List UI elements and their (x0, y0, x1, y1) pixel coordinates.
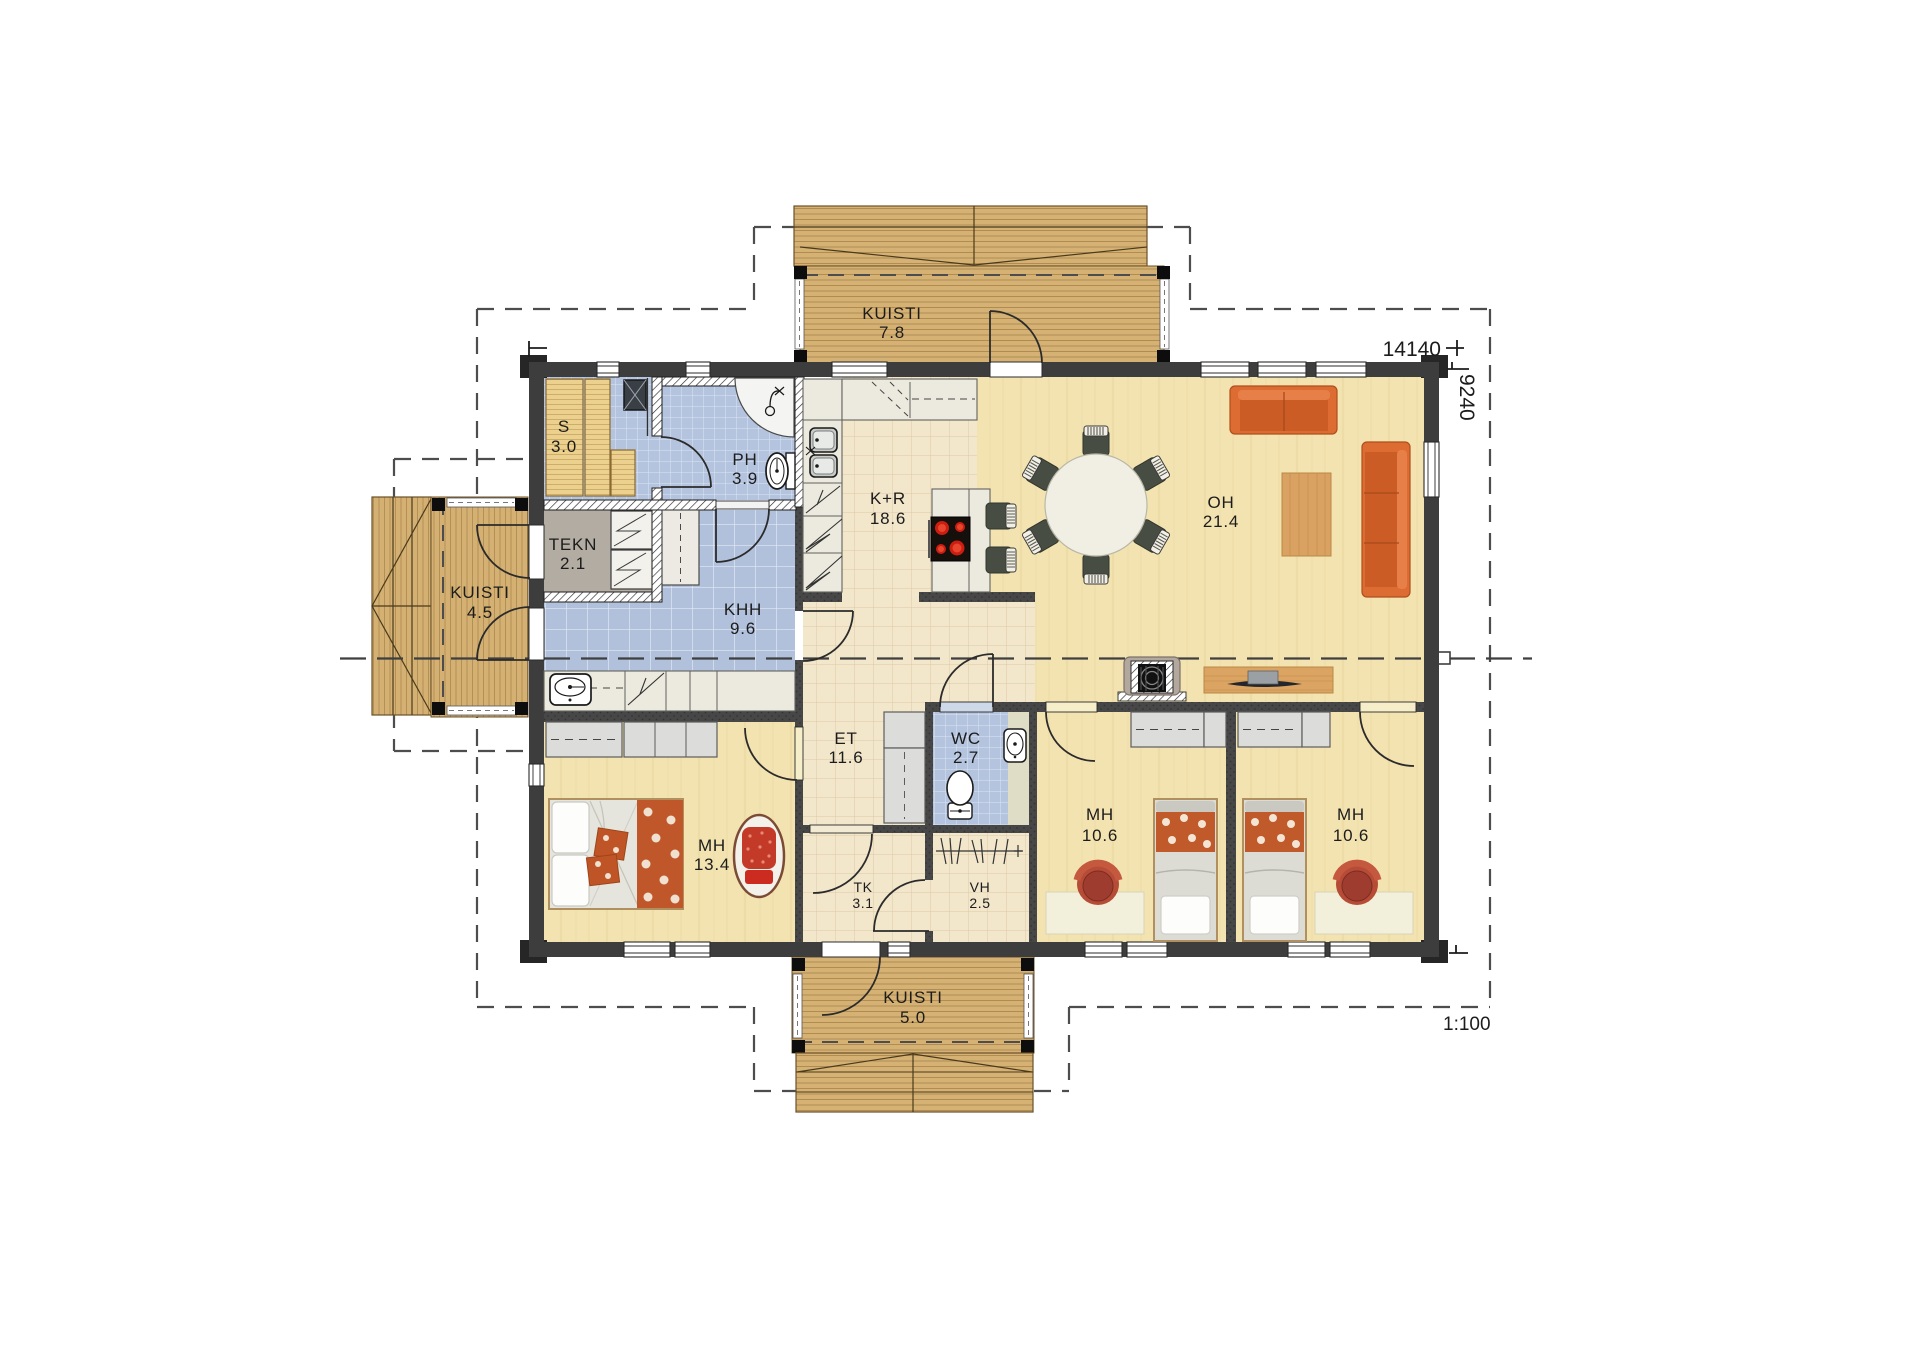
svg-text:TEKN: TEKN (549, 535, 598, 554)
svg-text:9240: 9240 (1455, 374, 1478, 421)
svg-text:KUISTI: KUISTI (883, 988, 943, 1007)
svg-text:PH: PH (732, 450, 757, 469)
svg-text:ET: ET (834, 729, 857, 748)
svg-text:K+R: K+R (870, 489, 906, 508)
svg-text:S: S (558, 417, 570, 436)
svg-text:21.4: 21.4 (1203, 512, 1239, 531)
svg-text:2.7: 2.7 (953, 748, 979, 767)
svg-text:2.5: 2.5 (969, 895, 990, 911)
svg-text:TK: TK (853, 879, 872, 895)
svg-text:4.5: 4.5 (467, 603, 493, 622)
svg-text:KUISTI: KUISTI (862, 304, 922, 323)
svg-text:MH: MH (1337, 805, 1365, 824)
svg-text:WC: WC (951, 729, 981, 748)
svg-text:3.0: 3.0 (551, 437, 577, 456)
svg-text:3.9: 3.9 (732, 469, 758, 488)
svg-text:5.0: 5.0 (900, 1008, 926, 1027)
svg-text:14140: 14140 (1383, 338, 1441, 361)
svg-text:MH: MH (698, 836, 726, 855)
svg-text:11.6: 11.6 (828, 748, 863, 767)
svg-text:18.6: 18.6 (870, 509, 906, 528)
svg-text:VH: VH (970, 879, 991, 895)
svg-text:OH: OH (1207, 493, 1234, 512)
svg-text:KUISTI: KUISTI (450, 583, 510, 602)
svg-text:MH: MH (1086, 805, 1114, 824)
svg-text:10.6: 10.6 (1333, 826, 1369, 845)
svg-text:2.1: 2.1 (560, 554, 586, 573)
svg-text:KHH: KHH (724, 600, 762, 619)
svg-text:13.4: 13.4 (694, 855, 730, 874)
svg-text:7.8: 7.8 (879, 323, 905, 342)
svg-text:1:100: 1:100 (1443, 1014, 1491, 1035)
svg-text:3.1: 3.1 (852, 895, 873, 911)
svg-text:10.6: 10.6 (1082, 826, 1118, 845)
svg-text:9.6: 9.6 (730, 619, 756, 638)
